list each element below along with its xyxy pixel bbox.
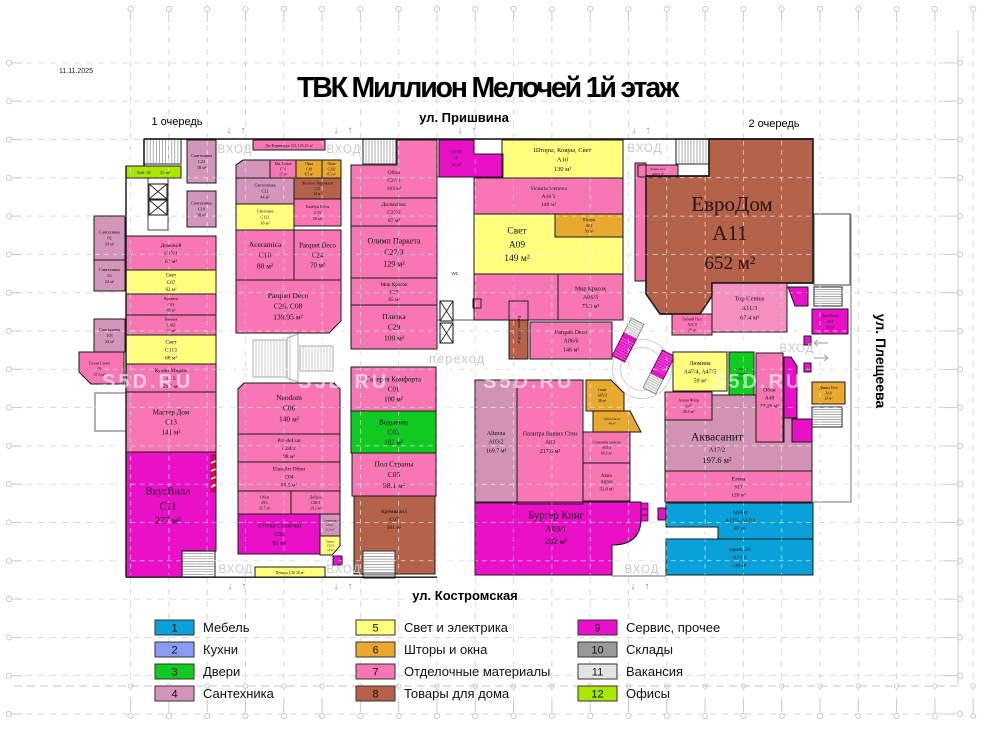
svg-text:Доброе: Доброе	[310, 495, 322, 499]
svg-text:Арпис 21: Арпис 21	[729, 547, 751, 553]
svg-text:C121: C121	[260, 215, 269, 220]
svg-text:140 м²: 140 м²	[541, 202, 556, 208]
svg-text:38 м²: 38 м²	[197, 213, 207, 218]
svg-text:8.5 м²: 8.5 м²	[327, 173, 336, 177]
svg-text:Свет: Свет	[166, 274, 177, 279]
svg-text:16 м²: 16 м²	[327, 548, 334, 552]
svg-text:28 м²: 28 м²	[826, 325, 836, 330]
svg-text:Долматекс: Долматекс	[382, 202, 407, 208]
svg-text:C23: C23	[198, 159, 205, 164]
svg-text:09: 09	[97, 366, 101, 371]
svg-text:A02: A02	[586, 223, 593, 228]
svg-text:A11/3: A11/3	[741, 305, 757, 312]
svg-text:Aceramica: Aceramica	[249, 240, 282, 249]
svg-text:Кухни: Кухни	[203, 642, 238, 657]
svg-text:11: 11	[592, 667, 603, 679]
svg-text:2У: 2У	[453, 156, 459, 161]
svg-text:↑: ↑	[348, 125, 353, 136]
svg-text:Водьявиц: Водьявиц	[379, 418, 408, 426]
svg-text:A03/2: A03/2	[489, 440, 504, 446]
svg-text:C29: C29	[388, 323, 401, 332]
svg-text:1 очередь: 1 очередь	[151, 116, 202, 128]
svg-text:C27/3: C27/3	[384, 248, 404, 257]
svg-text:70 м²: 70 м²	[310, 262, 325, 269]
svg-text:98.1 м²: 98.1 м²	[383, 481, 406, 490]
svg-text:10: 10	[591, 645, 603, 657]
svg-text:↓: ↓	[227, 125, 232, 136]
svg-text:S17: S17	[734, 484, 743, 490]
svg-text:↑: ↑	[472, 125, 477, 136]
svg-text:C13: C13	[165, 419, 177, 427]
svg-text:А11: А11	[712, 221, 747, 245]
svg-text:Сантехника: Сантехника	[99, 327, 120, 332]
svg-text:Мастер Дом: Мастер Дом	[153, 408, 190, 416]
svg-text:↑: ↑	[241, 125, 246, 136]
svg-text:C11: C11	[159, 502, 176, 513]
svg-text:Шторы, Ковры, Свет: Шторы, Ковры, Свет	[534, 147, 592, 154]
svg-text:652 м²: 652 м²	[705, 253, 756, 274]
svg-text:50 м²: 50 м²	[313, 216, 323, 221]
svg-text:ВХОД: ВХОД	[780, 343, 815, 355]
svg-text:2 очередь: 2 очередь	[748, 118, 799, 130]
svg-text:Parquet Deco: Parquet Deco	[299, 243, 336, 250]
svg-text:C10Z: C10Z	[166, 322, 176, 327]
svg-text:C01: C01	[168, 302, 175, 307]
svg-text:Alaro: Alaro	[601, 474, 613, 479]
svg-text:A14: A14	[825, 391, 831, 395]
svg-text:Мир Красок: Мир Красок	[575, 286, 606, 292]
svg-text:Елена: Елена	[732, 477, 746, 483]
svg-text:Parquet Deco: Parquet Deco	[555, 330, 588, 336]
svg-text:Мир Красок: Мир Красок	[380, 282, 408, 288]
svg-text:C06: C06	[283, 404, 296, 413]
svg-text:Гибкий Пол: Гибкий Пол	[682, 317, 701, 321]
svg-text:ЕвроДом: ЕвроДом	[691, 192, 772, 216]
svg-text:Свет и электрика: Свет и электрика	[404, 620, 509, 635]
svg-text:СДЭК: СДЭК	[450, 149, 462, 154]
svg-text:17 м²: 17 м²	[279, 173, 287, 177]
svg-text:Люмина: Люмина	[689, 361, 711, 367]
svg-text:↓: ↓	[334, 581, 339, 592]
svg-text:C22: C22	[262, 189, 269, 194]
svg-text:↓: ↓	[334, 125, 339, 136]
svg-text:140 м²: 140 м²	[279, 415, 300, 424]
svg-text:Каб. М: Каб. М	[137, 170, 151, 175]
svg-text:140 м²: 140 м²	[732, 563, 747, 569]
svg-text:49.3 м²: 49.3 м²	[683, 409, 696, 414]
svg-text:3: 3	[171, 667, 177, 679]
svg-text:C18: C18	[306, 167, 312, 171]
svg-text:Сантехника: Сантехника	[191, 153, 212, 158]
svg-text:Pol-deLun: Pol-deLun	[277, 438, 300, 444]
svg-text:Обои: Обои	[260, 495, 269, 499]
svg-text:C21: C21	[315, 187, 321, 191]
svg-text:C20/3: C20/3	[311, 501, 320, 505]
svg-text:А48: А48	[765, 395, 775, 401]
svg-text:Склады: Склады	[626, 642, 673, 657]
svg-text:03: 03	[107, 273, 111, 278]
svg-text:ул. Костромская: ул. Костромская	[412, 588, 518, 603]
svg-text:↓: ↓	[631, 581, 636, 592]
svg-text:31.7 м²: 31.7 м²	[259, 506, 271, 510]
svg-text:6: 6	[372, 645, 378, 657]
svg-text:C27: C27	[390, 289, 399, 295]
svg-text:24 м²: 24 м²	[314, 192, 322, 196]
svg-text:21 м²: 21 м²	[160, 170, 171, 175]
svg-text:32 м²: 32 м²	[451, 162, 461, 167]
svg-text:Крёмварил: Крёмварил	[381, 509, 407, 515]
svg-text:↓: ↓	[632, 125, 637, 136]
svg-text:Дивны Теле: Дивны Теле	[819, 386, 838, 390]
svg-text:wc: wc	[451, 271, 459, 277]
svg-text:C04/2: C04/2	[282, 446, 296, 452]
svg-text:A03/1: A03/1	[545, 524, 566, 534]
svg-text:C03: C03	[388, 429, 400, 437]
svg-text:91 м²: 91 м²	[272, 541, 285, 547]
svg-text:40 м²: 40 м²	[167, 308, 177, 313]
svg-text:Свет: Свет	[507, 227, 527, 237]
svg-text:переход: переход	[429, 351, 485, 366]
svg-text:60.3 м²: 60.3 м²	[601, 451, 613, 455]
svg-text:Ванная: Ванная	[165, 317, 178, 322]
svg-text:29/1: 29/1	[261, 501, 268, 505]
svg-text:ВХОД: ВХОД	[628, 143, 663, 155]
svg-text:C04: C04	[284, 474, 293, 480]
svg-text:↑: ↑	[242, 581, 247, 592]
svg-text:130 м²: 130 м²	[554, 166, 571, 173]
svg-text:277 м²: 277 м²	[155, 517, 181, 527]
svg-text:A10: A10	[557, 156, 568, 163]
svg-text:146 м²: 146 м²	[563, 347, 579, 353]
svg-text:A05/4: A05/4	[602, 446, 612, 450]
svg-text:11.11.2025: 11.11.2025	[59, 68, 93, 75]
svg-text:A06/6: A06/6	[564, 339, 579, 345]
svg-text:34 м²: 34 м²	[105, 242, 115, 247]
svg-text:Олимп Паркета: Олимп Паркета	[367, 236, 421, 245]
svg-text:Altezza: Altezza	[487, 431, 506, 437]
svg-text:Мы. Белые: Мы. Белые	[275, 162, 292, 166]
svg-text:A05/3: A05/3	[597, 393, 607, 397]
svg-text:65 м²: 65 м²	[388, 297, 400, 303]
svg-text:59 м²: 59 м²	[693, 378, 706, 384]
svg-text:А60 9 м²: А60 9 м²	[652, 172, 664, 176]
svg-text:1: 1	[171, 623, 177, 635]
svg-text:169.7 м²: 169.7 м²	[486, 448, 507, 454]
svg-text:Шторы: Шторы	[583, 217, 596, 222]
svg-text:Аквасанит: Аквасанит	[691, 431, 743, 443]
svg-text:101 м²: 101 м²	[387, 525, 402, 531]
svg-text:A17/5, A17/3: A17/5, A17/3	[725, 518, 755, 524]
svg-text:87 м²: 87 м²	[734, 526, 746, 532]
svg-text:Сервис, прочее: Сервис, прочее	[626, 620, 720, 635]
svg-text:100 м²: 100 м²	[384, 334, 405, 343]
svg-text:141 м²: 141 м²	[162, 429, 181, 437]
svg-text:ВХОД: ВХОД	[218, 144, 253, 156]
svg-text:ВХОД: ВХОД	[625, 564, 660, 576]
svg-text:С26, C08: С26, C08	[274, 302, 303, 311]
svg-text:A06/3: A06/3	[583, 295, 598, 301]
svg-text:62 м²: 62 м²	[166, 287, 177, 293]
svg-text:34 м²: 34 м²	[105, 279, 115, 284]
svg-text:Палитра Ваших Стен: Палитра Ваших Стен	[523, 431, 578, 437]
svg-text:8: 8	[372, 689, 378, 701]
svg-text:Обои: Обои	[388, 169, 401, 176]
svg-text:80 м²: 80 м²	[257, 262, 274, 271]
svg-text:4: 4	[171, 689, 177, 701]
svg-text:282 м²: 282 м²	[545, 536, 568, 546]
svg-text:C01: C01	[388, 386, 400, 394]
svg-text:Окна: Окна	[328, 162, 336, 166]
svg-text:↑: ↑	[348, 581, 353, 592]
svg-text:197.6 м²: 197.6 м²	[702, 455, 732, 465]
svg-text:67 м²: 67 м²	[388, 218, 400, 224]
svg-text:67.4 м²: 67.4 м²	[740, 314, 759, 321]
svg-text:ул. Пришвина: ул. Пришвина	[419, 110, 509, 125]
svg-text:ВХОД: ВХОД	[327, 144, 362, 156]
svg-text:Домовой: Домовой	[161, 242, 182, 249]
svg-text:S5D.RU: S5D.RU	[298, 371, 389, 393]
svg-text:A16/2: A16/2	[542, 194, 556, 200]
svg-text:73.5 м²: 73.5 м²	[582, 304, 600, 310]
svg-text:50 м²: 50 м²	[585, 229, 595, 234]
svg-text:Бамбук Юсм: Бамбук Юсм	[306, 204, 329, 209]
svg-text:A17/4: A17/4	[733, 555, 747, 561]
svg-text:217.6 м²: 217.6 м²	[540, 449, 561, 455]
svg-text:29.2 м²: 29.2 м²	[310, 506, 322, 510]
svg-text:ВкусВилл: ВкусВилл	[146, 486, 191, 497]
svg-text:A03: A03	[545, 440, 555, 446]
svg-text:Плитка: Плитка	[382, 312, 406, 321]
svg-text:A11/3: A11/3	[687, 323, 696, 327]
svg-text:↑: ↑	[645, 581, 650, 592]
svg-text:C16: C16	[280, 167, 286, 171]
svg-text:A12: A12	[827, 319, 834, 324]
svg-text:C19: C19	[198, 207, 205, 212]
svg-text:Окна: Окна	[305, 162, 313, 166]
svg-text:Сантехника: Сантехника	[255, 182, 276, 187]
svg-text:8.5 м²: 8.5 м²	[305, 173, 314, 177]
svg-text:34 м²: 34 м²	[105, 339, 115, 344]
svg-text:24 м²: 24 м²	[825, 397, 833, 401]
svg-text:68 м²: 68 м²	[165, 355, 177, 361]
svg-text:Stylist: Stylist	[733, 510, 748, 516]
svg-text:02: 02	[107, 236, 111, 241]
svg-text:C202: C202	[328, 167, 336, 171]
svg-text:21.6 м²: 21.6 м²	[326, 527, 335, 531]
svg-text:Стеновые панели: Стеновые панели	[592, 440, 620, 444]
svg-text:Сантехника: Сантехника	[203, 686, 275, 701]
svg-text:Кровати: Кровати	[164, 296, 179, 301]
svg-text:C33: C33	[314, 210, 321, 215]
svg-text:102 м²: 102 м²	[384, 439, 403, 447]
svg-text:44 м²: 44 м²	[608, 422, 615, 426]
svg-text:18 м²: 18 м²	[260, 221, 270, 226]
svg-text:51.6 м²: 51.6 м²	[599, 487, 614, 493]
svg-text:Бургер Кинг: Бургер Кинг	[528, 510, 584, 521]
svg-text:C05: C05	[388, 470, 401, 479]
svg-text:5: 5	[372, 623, 378, 635]
svg-text:Помада C30 20 м²: Помада C30 20 м²	[276, 571, 306, 575]
svg-text:98 м²: 98 м²	[283, 454, 295, 460]
svg-text:149 м²: 149 м²	[504, 254, 530, 264]
svg-text:44 м²: 44 м²	[260, 195, 270, 200]
svg-text:ElastArt Обои: ElastArt Обои	[273, 466, 305, 473]
svg-text:38 м²: 38 м²	[197, 165, 207, 170]
svg-text:Светлана: Светлана	[257, 208, 274, 213]
svg-text:Сантехника: Сантехника	[99, 229, 120, 234]
svg-text:A17/2: A17/2	[709, 447, 725, 454]
svg-text:Товары для дома: Товары для дома	[404, 686, 510, 701]
svg-text:C02: C02	[274, 532, 284, 538]
svg-text:Victoria Stenova: Victoria Stenova	[530, 186, 567, 192]
svg-text:C17/1: C17/1	[164, 251, 178, 257]
svg-text:S5D.RU: S5D.RU	[483, 371, 574, 393]
svg-text:S5D.RU: S5D.RU	[102, 371, 193, 393]
svg-text:↓: ↓	[228, 581, 233, 592]
svg-text:Сухая Стена: Сухая Стена	[89, 360, 110, 365]
svg-text:Lunat: Lunat	[598, 388, 608, 392]
svg-text:ТВК Миллион Мелочей 1й этаж: ТВК Миллион Мелочей 1й этаж	[297, 72, 680, 104]
svg-text:129 м²: 129 м²	[383, 259, 405, 268]
svg-text:73.26 м²: 73.26 м²	[760, 403, 779, 409]
svg-text:Сантехника: Сантехника	[191, 200, 212, 205]
svg-text:↓: ↓	[458, 125, 463, 136]
svg-text:103: 103	[106, 333, 112, 338]
svg-text:12: 12	[591, 689, 603, 701]
svg-text:Top Centus: Top Centus	[735, 295, 765, 302]
svg-text:Пол Страны: Пол Страны	[374, 459, 413, 468]
svg-text:9: 9	[594, 623, 600, 635]
svg-text:163 м²: 163 м²	[387, 186, 402, 192]
svg-text:Сантехника: Сантехника	[99, 267, 120, 272]
svg-text:ВХОД: ВХОД	[219, 564, 254, 576]
svg-text:Альпа Флор: Альпа Флор	[678, 398, 699, 403]
svg-text:C27/1: C27/1	[387, 178, 401, 184]
svg-text:29 м²: 29 м²	[688, 328, 697, 332]
svg-text:7: 7	[372, 667, 378, 679]
svg-text:S5D.RU: S5D.RU	[712, 371, 803, 393]
svg-text:C24: C24	[312, 252, 324, 259]
svg-text:Свет: Свет	[165, 340, 177, 346]
svg-text:C07: C07	[167, 281, 176, 286]
svg-text:Камины 16/1 26 м²: Камины 16/1 26 м²	[517, 316, 521, 345]
svg-text:Офисы: Офисы	[626, 686, 670, 701]
svg-text:А47: А47	[685, 403, 692, 408]
svg-text:ВХОД: ВХОД	[327, 564, 362, 576]
svg-text:Ковры мод: Ковры мод	[650, 167, 666, 171]
svg-text:Двери: Двери	[203, 664, 240, 679]
svg-text:Отделочные материалы: Отделочные материалы	[404, 664, 550, 679]
svg-text:126 м²: 126 м²	[731, 492, 746, 498]
svg-text:67 м²: 67 м²	[165, 259, 177, 265]
svg-text:Parquet Deco: Parquet Deco	[268, 291, 309, 300]
svg-text:A03/6: A03/6	[601, 481, 614, 486]
svg-text:C10: C10	[259, 251, 272, 260]
svg-text:C27/2: C27/2	[387, 210, 401, 216]
svg-text:A09: A09	[509, 240, 526, 250]
svg-text:Neodom: Neodom	[276, 393, 302, 402]
svg-text:Шторы и окна: Шторы и окна	[404, 642, 488, 657]
svg-text:Вакансия: Вакансия	[626, 664, 683, 679]
svg-text:ул. Плещеева: ул. Плещеева	[873, 314, 889, 409]
svg-text:88.5 м²: 88.5 м²	[281, 482, 297, 488]
svg-text:Мебель: Мебель	[203, 620, 250, 635]
svg-text:↑: ↑	[646, 125, 651, 136]
svg-text:C113: C113	[165, 347, 177, 353]
svg-text:100 м²: 100 м²	[384, 396, 403, 404]
svg-text:Дом Быта: Дом Быта	[822, 313, 839, 318]
svg-text:2: 2	[171, 645, 177, 657]
svg-text:38 м²: 38 м²	[598, 399, 607, 403]
svg-text:Жалюзи. Вертикали: Жалюзи. Вертикали	[302, 182, 333, 186]
svg-text:C07: C07	[389, 517, 398, 523]
svg-text:139.95 м²: 139.95 м²	[273, 313, 303, 322]
svg-text:Affini Decor: Affini Decor	[604, 417, 622, 421]
svg-text:Аптека Столички: Аптека Столички	[257, 523, 302, 529]
svg-text:55 м²: 55 м²	[167, 328, 177, 333]
